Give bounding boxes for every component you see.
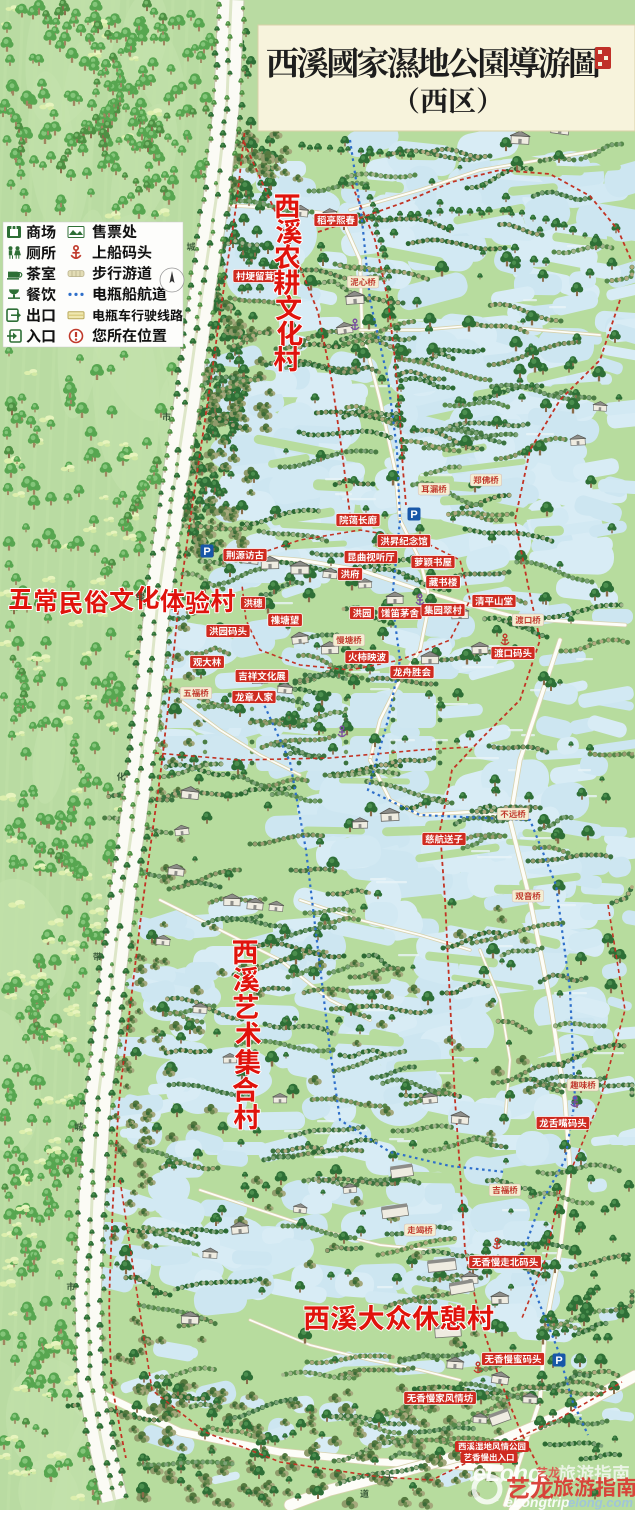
svg-text:P: P — [410, 509, 417, 521]
svg-text:elong.com: elong.com — [568, 1495, 633, 1510]
svg-text:P: P — [555, 1355, 562, 1367]
svg-text:P: P — [203, 546, 210, 558]
svg-text:eLongtrip: eLongtrip — [505, 1494, 570, 1510]
